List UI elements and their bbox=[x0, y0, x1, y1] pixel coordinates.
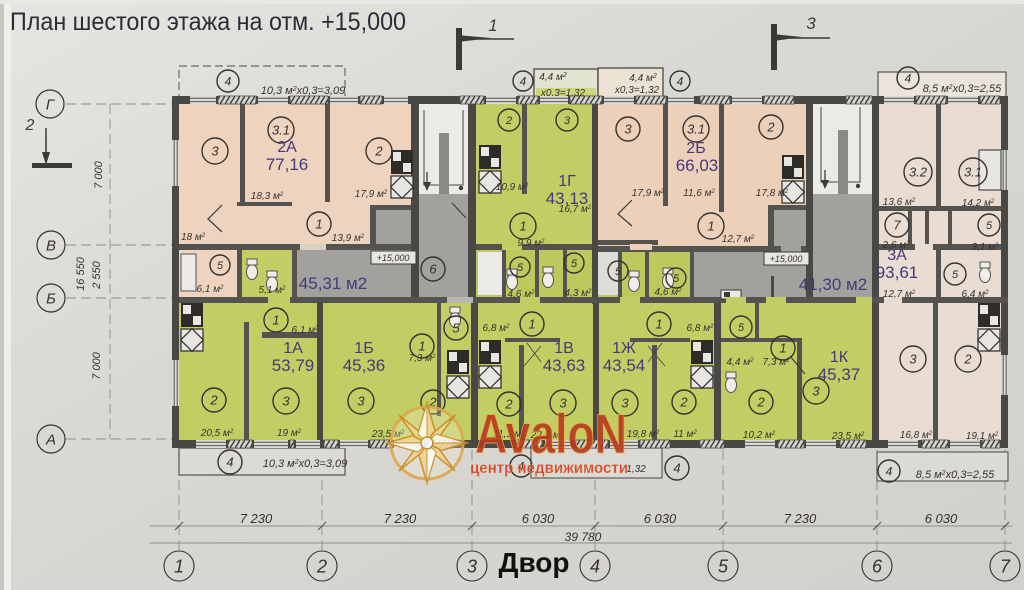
svg-text:3.1: 3.1 bbox=[687, 122, 705, 137]
svg-text:3: 3 bbox=[357, 394, 365, 409]
svg-text:2: 2 bbox=[316, 556, 327, 576]
svg-text:5,1 м2: 5,1 м2 bbox=[259, 285, 287, 296]
svg-text:10,3 м2х0,3=3,09: 10,3 м2х0,3=3,09 bbox=[263, 458, 348, 470]
svg-text:10,9 м2: 10,9 м2 bbox=[496, 182, 529, 193]
svg-text:43,63: 43,63 bbox=[543, 356, 586, 375]
svg-text:8,5 м2х0,3=2,55: 8,5 м2х0,3=2,55 bbox=[923, 83, 1002, 95]
svg-text:1: 1 bbox=[655, 317, 662, 332]
svg-text:Б: Б bbox=[46, 290, 56, 307]
svg-text:2: 2 bbox=[505, 115, 512, 127]
svg-text:2,6 м2: 2,6 м2 bbox=[882, 240, 911, 251]
svg-text:4: 4 bbox=[673, 461, 680, 476]
svg-text:6: 6 bbox=[872, 556, 883, 576]
svg-text:1В: 1В bbox=[554, 340, 574, 357]
svg-text:1: 1 bbox=[707, 219, 714, 234]
svg-text:4: 4 bbox=[225, 74, 232, 88]
svg-text:93,61: 93,61 bbox=[876, 263, 919, 282]
svg-text:4,4 м2: 4,4 м2 bbox=[539, 72, 567, 83]
svg-text:3: 3 bbox=[282, 394, 290, 409]
svg-text:23,5 м2: 23,5 м2 bbox=[831, 431, 865, 442]
svg-text:18,3 м2: 18,3 м2 bbox=[251, 191, 284, 202]
svg-text:6,8 м2: 6,8 м2 bbox=[687, 323, 715, 334]
svg-text:41,30 м2: 41,30 м2 bbox=[799, 275, 867, 294]
svg-text:77,16: 77,16 bbox=[266, 155, 309, 174]
svg-text:х0,3=1,32: х0,3=1,32 bbox=[614, 85, 660, 96]
svg-text:2: 2 bbox=[25, 117, 35, 134]
svg-text:14,2 м2: 14,2 м2 bbox=[962, 198, 995, 209]
svg-text:17,9 м2: 17,9 м2 bbox=[355, 189, 388, 200]
svg-text:6,8 м2: 6,8 м2 bbox=[483, 323, 511, 334]
svg-text:+15,000: +15,000 bbox=[377, 253, 410, 263]
svg-text:3.1: 3.1 bbox=[272, 123, 290, 138]
svg-text:3: 3 bbox=[467, 556, 477, 576]
svg-text:16,8 м2: 16,8 м2 bbox=[900, 430, 933, 441]
svg-text:Двор: Двор bbox=[499, 547, 570, 578]
svg-text:3.1: 3.1 bbox=[964, 165, 982, 180]
svg-text:5: 5 bbox=[738, 322, 745, 334]
svg-text:1: 1 bbox=[272, 313, 279, 328]
svg-text:6,1 м2: 6,1 м2 bbox=[197, 284, 225, 295]
svg-text:7,3 м2: 7,3 м2 bbox=[763, 357, 791, 368]
svg-text:5: 5 bbox=[217, 260, 224, 272]
svg-text:3: 3 bbox=[812, 384, 820, 399]
svg-text:1: 1 bbox=[418, 339, 425, 354]
svg-text:7 000: 7 000 bbox=[93, 160, 105, 188]
svg-text:7 000: 7 000 bbox=[91, 351, 103, 379]
svg-text:6: 6 bbox=[429, 262, 437, 277]
svg-text:6 030: 6 030 bbox=[522, 511, 555, 526]
svg-text:6,4 м2: 6,4 м2 bbox=[962, 289, 990, 300]
svg-text:5: 5 bbox=[615, 266, 622, 278]
svg-text:4,6 м2: 4,6 м2 bbox=[655, 287, 683, 298]
svg-text:1: 1 bbox=[519, 219, 526, 234]
svg-text:7,3 м2: 7,3 м2 bbox=[409, 353, 437, 364]
svg-text:66,03: 66,03 bbox=[676, 156, 719, 175]
svg-text:20,5 м2: 20,5 м2 bbox=[200, 428, 234, 439]
svg-text:10,3 м2х0,3=3,09: 10,3 м2х0,3=3,09 bbox=[261, 85, 346, 97]
svg-text:7 230: 7 230 bbox=[784, 511, 817, 526]
svg-text:+15,000: +15,000 bbox=[770, 254, 803, 264]
svg-text:43,54: 43,54 bbox=[603, 356, 646, 375]
svg-text:1Г: 1Г bbox=[558, 173, 576, 190]
svg-text:5: 5 bbox=[452, 321, 460, 336]
svg-text:4,6 м2: 4,6 м2 bbox=[508, 289, 536, 300]
svg-text:5: 5 bbox=[986, 220, 993, 232]
svg-text:12,7 м2: 12,7 м2 bbox=[722, 234, 755, 245]
svg-text:2: 2 bbox=[963, 352, 972, 367]
svg-text:6,1 м2: 6,1 м2 bbox=[292, 325, 320, 336]
svg-text:1: 1 bbox=[528, 317, 535, 332]
svg-text:45,36: 45,36 bbox=[343, 356, 386, 375]
svg-text:4: 4 bbox=[590, 556, 600, 576]
svg-text:4: 4 bbox=[520, 74, 527, 88]
svg-text:53,79: 53,79 bbox=[272, 356, 315, 375]
svg-text:19,1 м2: 19,1 м2 bbox=[966, 431, 999, 442]
svg-text:центр недвижимости: центр недвижимости bbox=[470, 460, 628, 477]
svg-text:11,6 м2: 11,6 м2 bbox=[683, 188, 715, 199]
svg-text:4,3 м2: 4,3 м2 bbox=[565, 288, 593, 299]
svg-text:19,8 м2: 19,8 м2 bbox=[627, 429, 660, 440]
svg-text:1Б: 1Б bbox=[354, 340, 373, 357]
svg-text:7 230: 7 230 bbox=[384, 511, 417, 526]
svg-text:7: 7 bbox=[893, 218, 901, 233]
svg-text:2А: 2А bbox=[277, 139, 297, 156]
svg-text:План шестого этажа на отм. +15: План шестого этажа на отм. +15,000 bbox=[10, 8, 406, 36]
svg-text:45,37: 45,37 bbox=[818, 365, 861, 384]
svg-text:4: 4 bbox=[226, 455, 233, 470]
svg-text:3: 3 bbox=[806, 14, 816, 33]
svg-text:1,32: 1,32 bbox=[626, 464, 646, 475]
svg-text:2Б: 2Б bbox=[686, 140, 705, 157]
svg-text:16 550: 16 550 bbox=[75, 256, 87, 291]
svg-text:4,4 м2: 4,4 м2 bbox=[629, 73, 657, 84]
svg-text:3: 3 bbox=[211, 144, 219, 159]
svg-text:7: 7 bbox=[1000, 556, 1011, 576]
svg-text:9,9 м2: 9,9 м2 bbox=[518, 238, 546, 249]
svg-text:1: 1 bbox=[488, 16, 497, 35]
svg-text:4,4 м2: 4,4 м2 bbox=[727, 357, 755, 368]
svg-text:45,31 м2: 45,31 м2 bbox=[299, 274, 367, 293]
svg-text:12,7 м2: 12,7 м2 bbox=[883, 289, 916, 300]
svg-text:3: 3 bbox=[564, 115, 571, 127]
svg-text:3: 3 bbox=[909, 352, 917, 367]
svg-text:13,9 м2: 13,9 м2 bbox=[332, 233, 365, 244]
svg-text:1: 1 bbox=[174, 556, 184, 576]
svg-text:1Ж: 1Ж bbox=[612, 340, 636, 357]
svg-text:3,1 м2: 3,1 м2 bbox=[972, 242, 1000, 253]
svg-text:1: 1 bbox=[779, 341, 786, 356]
svg-text:39 780: 39 780 bbox=[565, 530, 602, 544]
svg-text:17,8 м2: 17,8 м2 bbox=[756, 188, 789, 199]
svg-text:В: В bbox=[46, 237, 56, 254]
svg-text:2: 2 bbox=[766, 120, 775, 135]
svg-text:А: А bbox=[45, 431, 56, 448]
svg-text:2: 2 bbox=[756, 395, 765, 410]
svg-text:4: 4 bbox=[905, 71, 912, 85]
svg-text:5: 5 bbox=[718, 556, 729, 576]
svg-text:3.2: 3.2 bbox=[909, 165, 928, 180]
svg-text:1К: 1К bbox=[830, 349, 849, 366]
svg-text:17,9 м2: 17,9 м2 bbox=[632, 188, 665, 199]
svg-text:2: 2 bbox=[374, 144, 383, 159]
svg-text:6 030: 6 030 bbox=[644, 511, 677, 526]
svg-text:7 230: 7 230 bbox=[240, 511, 273, 526]
svg-text:13,6 м2: 13,6 м2 bbox=[883, 197, 916, 208]
svg-text:AvaloN: AvaloN bbox=[475, 402, 627, 465]
svg-text:1А: 1А bbox=[283, 340, 303, 357]
svg-text:10,2 м2: 10,2 м2 bbox=[743, 430, 776, 441]
svg-text:3: 3 bbox=[624, 122, 632, 137]
svg-text:8,5 м2х0,3=2,55: 8,5 м2х0,3=2,55 bbox=[916, 469, 995, 481]
svg-text:4: 4 bbox=[677, 74, 684, 88]
svg-text:5: 5 bbox=[673, 273, 680, 285]
svg-text:5: 5 bbox=[517, 262, 524, 274]
svg-text:16,7 м2: 16,7 м2 bbox=[559, 204, 592, 215]
svg-text:5: 5 bbox=[952, 269, 959, 281]
svg-text:6 030: 6 030 bbox=[925, 511, 958, 526]
svg-text:5: 5 bbox=[571, 258, 578, 270]
svg-text:2: 2 bbox=[679, 395, 688, 410]
svg-text:4: 4 bbox=[886, 464, 893, 478]
svg-text:2 550: 2 550 bbox=[91, 260, 103, 289]
svg-text:1: 1 bbox=[315, 217, 322, 232]
svg-text:2: 2 bbox=[209, 393, 218, 408]
